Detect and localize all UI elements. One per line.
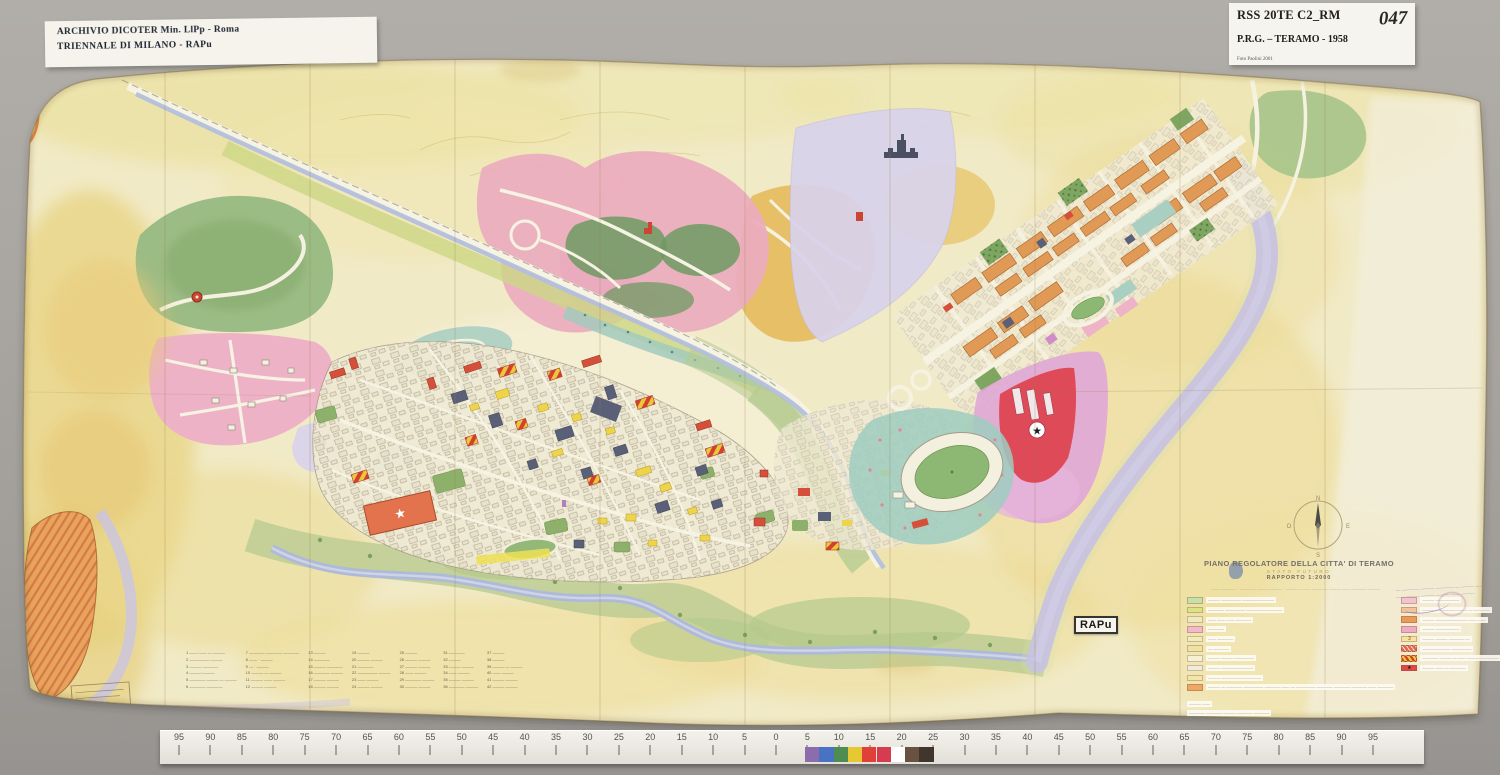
legend-swatch xyxy=(1187,636,1203,643)
index-entry: 31 ———— xyxy=(443,650,478,656)
index-entry: 20 ——— ——— xyxy=(352,657,391,663)
index-entry: 3 ——— ———— xyxy=(186,664,237,670)
calibration-patch xyxy=(862,747,876,762)
legend-swatch xyxy=(1187,655,1203,662)
legend-label: ——————— ————— xyxy=(1420,646,1473,652)
calibration-patch xyxy=(848,747,862,762)
legend-swatch xyxy=(1187,645,1203,652)
legend-label: ——— —— — ———— xyxy=(1420,665,1467,671)
index-column: 13 ———14 ————15 ——— ————16 ———— ———17 ——… xyxy=(308,650,343,690)
legend-title: PIANO REGOLATORE DELLA CITTA' DI TERAMO xyxy=(1185,559,1413,568)
legend-label: ——— ———————— xyxy=(1206,665,1255,671)
index-entry: 8 —— · ——— xyxy=(246,657,300,663)
calibration-patch xyxy=(891,747,905,762)
legend-swatch: 3 xyxy=(1401,636,1417,643)
index-entry: 2 ————— ——— xyxy=(186,657,237,663)
index-entry: 28 —— ——— xyxy=(400,670,435,676)
legend-row: 3——— ——— ———— — xyxy=(1401,636,1500,643)
index-list: 1 ——·—— — ———2 ————— ———3 ——— ————4 ———·… xyxy=(186,650,726,690)
legend-note: ——— —— xyxy=(1187,701,1212,707)
map-legend: PIANO REGOLATORE DELLA CITTA' DI TERAMO … xyxy=(1185,556,1413,716)
legend-row: —— —— —— ———— xyxy=(1187,616,1395,623)
legend-swatch xyxy=(1401,655,1417,662)
legend-swatch xyxy=(1401,626,1417,633)
legend-label: ——— ————— ———————— xyxy=(1206,597,1276,603)
index-entry: 19 ——— xyxy=(352,650,391,656)
index-entry: 9 — · ——— xyxy=(246,664,300,670)
calibration-patch xyxy=(805,747,819,762)
index-column: 1 ——·—— — ———2 ————— ———3 ——— ————4 ———·… xyxy=(186,650,237,690)
legend-swatch xyxy=(1401,616,1417,623)
index-entry: 40 —— ——— xyxy=(487,670,523,676)
plan-title: P.R.G. – TERAMO - 1958 xyxy=(1237,34,1407,45)
legend-label: ——— —————————— xyxy=(1206,675,1263,681)
index-column: 37 ———38 ———39 ——— — ———40 —— ———41 ——— … xyxy=(487,650,523,690)
index-entry: 5 ———— ——— — ——— xyxy=(186,677,237,683)
pink-hillside-zone xyxy=(477,151,769,332)
index-entry: 12 ——— ——— xyxy=(246,684,300,690)
legend-row: ——— —————— xyxy=(1401,626,1500,633)
svg-text:★: ★ xyxy=(1032,425,1042,438)
index-entry: 42 ——— ——— xyxy=(487,684,523,690)
index-column: 7 ———— ———— ————8 —— · ———9 — · ———10 ——… xyxy=(246,650,300,690)
index-entry: 30 ——— ——— xyxy=(400,684,435,690)
catalog-code: RSS 20TE C2_RM xyxy=(1237,8,1341,23)
index-column: 31 ————32 ———33 ——— ———34 —— ———35 ——— —… xyxy=(443,650,478,690)
index-entry: 11 ——— —— ——— xyxy=(246,677,300,683)
legend-label: ——— ——— ———— — xyxy=(1420,636,1471,642)
archive-photo-scene: ★ xyxy=(0,0,1500,775)
legend-note: ———— ———— ——— ———— ———— xyxy=(1187,710,1271,716)
index-entry: 34 —— ——— xyxy=(443,670,478,676)
index-entry: 10 ——— — ——— xyxy=(246,670,300,676)
legend-row: ———— xyxy=(1187,626,1395,633)
catalog-number: 047 xyxy=(1378,8,1407,31)
legend-row: ——— ——— ————— xyxy=(1187,655,1395,662)
legend-scale: RAPPORTO 1:2000 xyxy=(1185,575,1413,581)
legend-row: ★——— —— — ———— xyxy=(1401,665,1500,672)
legend-swatch xyxy=(1187,665,1203,672)
legend-label: ——— — ———— ————— ———— —— — ————— ———— ——… xyxy=(1206,684,1395,690)
calibration-patch xyxy=(919,747,933,762)
index-entry: 7 ———— ———— ———— xyxy=(246,650,300,656)
legend-row: — ———— xyxy=(1187,645,1395,652)
legend-row: ——— ———————— —— —— xyxy=(1401,616,1500,623)
index-entry: 21 ———— xyxy=(352,664,391,670)
index-entry: 1 ——·—— — ——— xyxy=(186,650,237,656)
index-entry: 29 ———— ——— xyxy=(400,677,435,683)
calibration-patch xyxy=(819,747,833,762)
legend-label: ———— ————— ————————— xyxy=(1206,607,1284,613)
legend-swatch xyxy=(1401,645,1417,652)
index-entry: 18 ——— ——— xyxy=(308,684,343,690)
legend-label: ——— ———————— —— —— xyxy=(1420,617,1487,623)
index-column: 25 ———26 ——— ———27 ——— ———28 —— ———29 ——… xyxy=(400,650,435,690)
index-entry: 35 ——— ——— xyxy=(443,677,478,683)
legend-label: —— ———— xyxy=(1206,636,1235,642)
legend-row: ———— ——— — —— ———————— xyxy=(1401,655,1500,662)
svg-text:O: O xyxy=(1287,524,1292,530)
calibration-patch xyxy=(877,747,891,762)
svg-text:N: N xyxy=(1316,496,1320,502)
index-entry: 25 ——— xyxy=(400,650,435,656)
index-entry: 15 ——— ———— xyxy=(308,664,343,670)
legend-swatch xyxy=(1187,616,1203,623)
index-entry: 39 ——— — ——— xyxy=(487,664,523,670)
legend-byline: —— ———— · ———— ——— ——— · ——— ——— ———— ——… xyxy=(1193,586,1398,591)
legend-row: ———— ————— ————————— xyxy=(1187,607,1395,614)
index-entry: 27 ——— ——— xyxy=(400,664,435,670)
legend-row: ——— —————————— xyxy=(1187,675,1395,682)
legend-swatch xyxy=(1187,597,1203,604)
legend-row: ——— — ———— ————— ———— —— — ————— ———— ——… xyxy=(1187,684,1395,691)
legend-swatch xyxy=(1187,626,1203,633)
index-entry: 41 ——— ——— xyxy=(487,677,523,683)
legend-label: ———— xyxy=(1206,626,1226,632)
index-entry: 36 ———— ——— xyxy=(443,684,478,690)
archive-label-line2: TRIENNALE DI MILANO - RAPu xyxy=(57,38,377,52)
index-entry: 16 ———— ——— xyxy=(308,670,343,676)
legend-swatch xyxy=(1187,675,1203,682)
index-column: 19 ———20 ——— ———21 ————22 ————— ———23 ——… xyxy=(352,650,391,690)
photo-credit: Foto Paolini 2001 xyxy=(1237,57,1407,62)
legend-row: ——— ————— ———————— xyxy=(1187,597,1395,604)
index-entry: 33 ——— ——— xyxy=(443,664,478,670)
legend-swatch xyxy=(1187,684,1203,691)
index-entry: 38 ——— xyxy=(487,657,523,663)
archive-label-top-right: RSS 20TE C2_RM 047 P.R.G. – TERAMO - 195… xyxy=(1229,3,1415,65)
legend-subtitle: STATO FUTURO xyxy=(1185,569,1413,574)
legend-row: —— ———— xyxy=(1187,636,1395,643)
index-entry: 13 ——— xyxy=(308,650,343,656)
legend-label: ——— —————— xyxy=(1420,626,1461,632)
index-entry: 22 ————— ——— xyxy=(352,670,391,676)
index-entry: 37 ——— xyxy=(487,650,523,656)
legend-label: —— —— —— ———— xyxy=(1206,617,1253,623)
index-entry: 24 ——— ——— xyxy=(352,684,391,690)
archive-label-top-left: ARCHIVIO DICOTER Min. LlPp - Roma TRIENN… xyxy=(45,17,378,68)
index-entry: 26 ——— ——— xyxy=(400,657,435,663)
ruler: 9590858075706560555045403530252015105051… xyxy=(160,730,1424,764)
legend-row: ——————— ————— xyxy=(1401,645,1500,652)
index-entry: 32 ——— xyxy=(443,657,478,663)
calibration-patch xyxy=(834,747,848,762)
legend-swatch xyxy=(1187,607,1203,614)
legend-notes: ——— —————— ———— ——— ———— ———— xyxy=(1187,701,1271,716)
index-entry: 4 ———·——— xyxy=(186,670,237,676)
svg-text:E: E xyxy=(1346,524,1350,530)
archive-label-line1: ARCHIVIO DICOTER Min. LlPp - Roma xyxy=(57,23,377,37)
legend-label: ———— ——— — —— ———————— xyxy=(1420,655,1500,661)
legend-label: ——— ——— ————— xyxy=(1206,655,1256,661)
legend-row: ——— ———————— xyxy=(1187,665,1395,672)
index-entry: 14 ———— xyxy=(308,657,343,663)
legend-label: — ———— xyxy=(1206,646,1231,652)
index-entry: 23 —— ——— xyxy=(352,677,391,683)
rapu-badge: RAPu xyxy=(1074,616,1118,634)
legend-column-left: ——— ————— ———————————— ————— ———————————… xyxy=(1187,597,1395,691)
calibration-patch xyxy=(905,747,919,762)
legend-swatch: ★ xyxy=(1401,665,1417,672)
index-entry: 17 ——— ——— xyxy=(308,677,343,683)
index-entry: 6 ———— ———— xyxy=(186,684,237,690)
